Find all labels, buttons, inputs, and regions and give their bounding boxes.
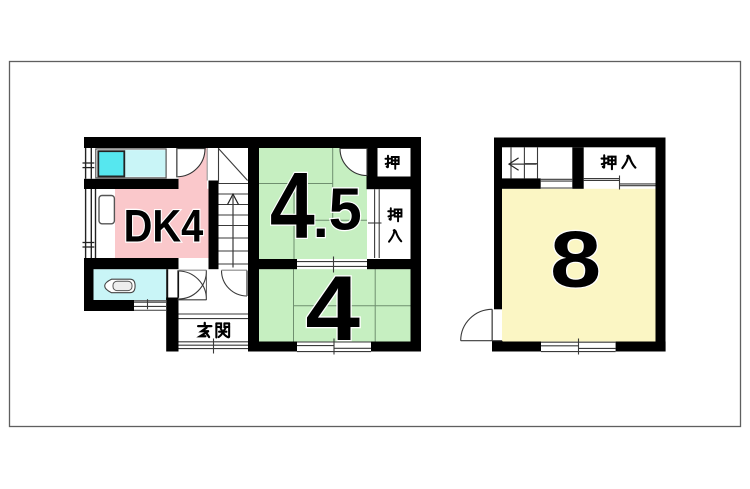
svg-text:5: 5 [329,175,362,242]
svg-text:8: 8 [550,215,601,304]
svg-text:4: 4 [306,258,361,360]
svg-text:.: . [313,186,329,250]
svg-text:DK4: DK4 [124,202,204,252]
svg-text:4: 4 [270,153,315,258]
